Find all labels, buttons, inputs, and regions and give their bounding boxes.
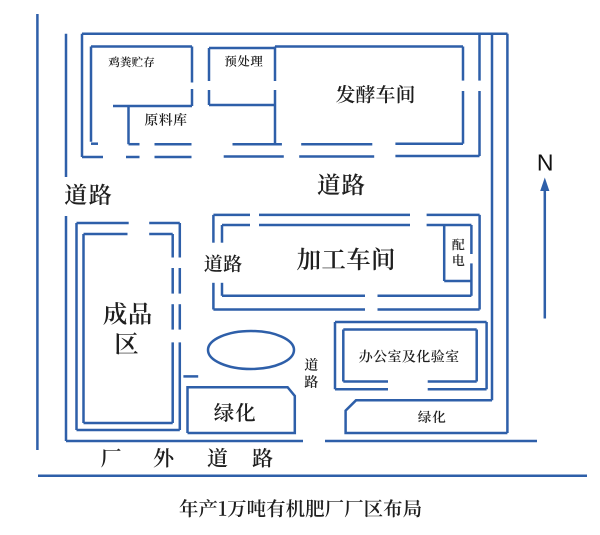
svg-text:N: N <box>537 149 554 175</box>
